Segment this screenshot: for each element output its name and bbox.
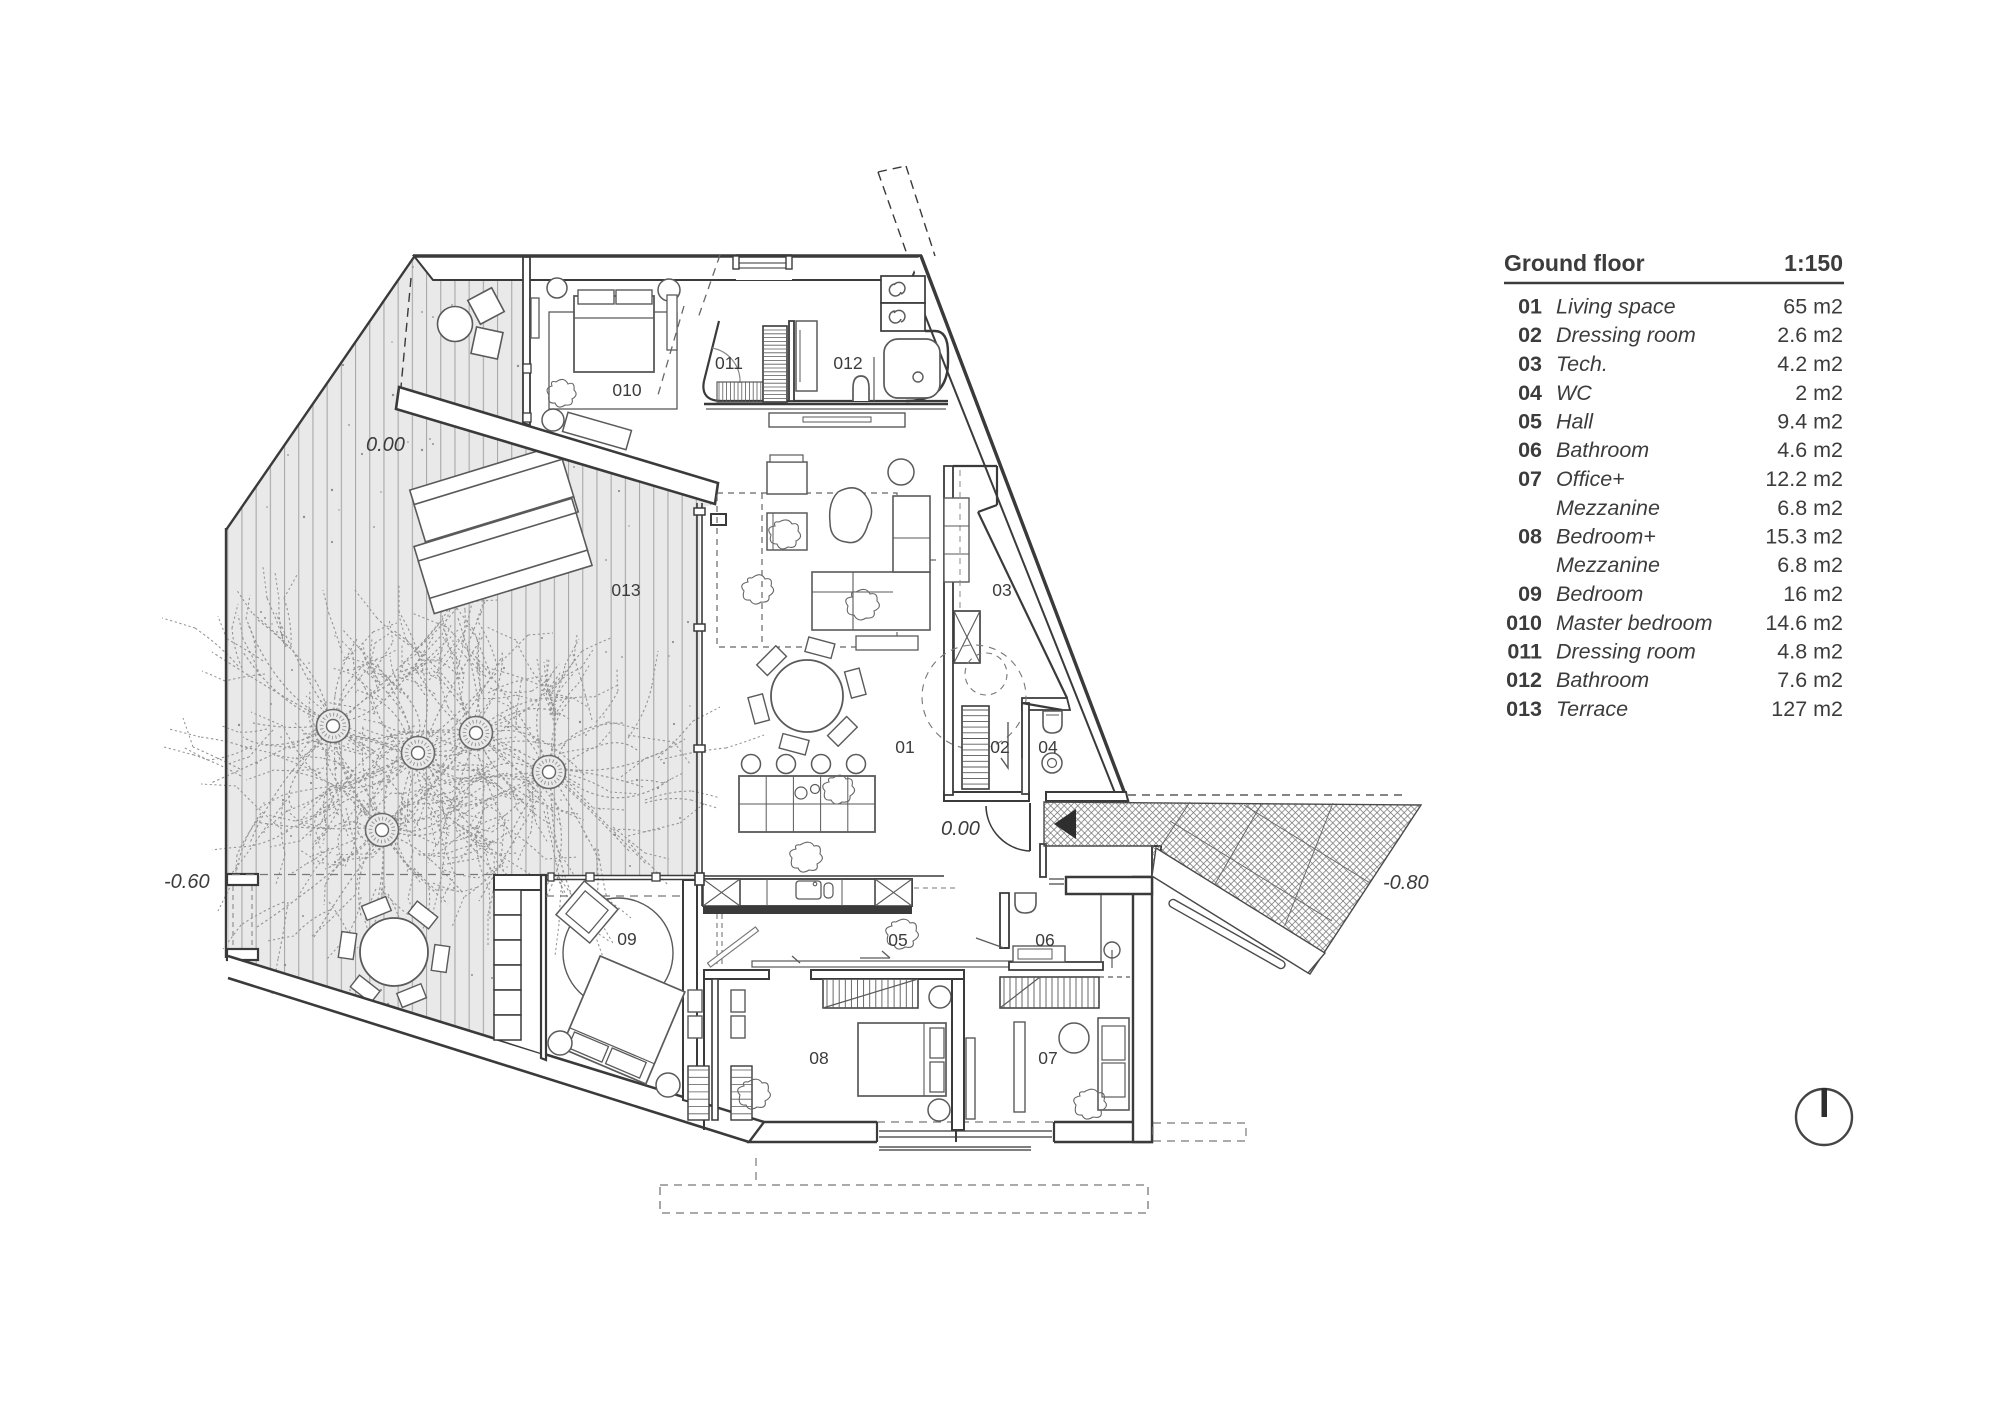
svg-text:02: 02 xyxy=(990,737,1009,757)
svg-text:4.8 m2: 4.8 m2 xyxy=(1777,640,1843,664)
svg-text:Office+: Office+ xyxy=(1556,467,1625,491)
svg-text:12.2 m2: 12.2 m2 xyxy=(1765,467,1843,491)
svg-text:Bedroom: Bedroom xyxy=(1556,582,1643,606)
svg-text:Bathroom: Bathroom xyxy=(1556,438,1649,462)
svg-text:0.00: 0.00 xyxy=(941,818,980,840)
svg-text:Tech.: Tech. xyxy=(1556,352,1608,376)
svg-text:9.4 m2: 9.4 m2 xyxy=(1777,410,1843,434)
svg-text:010: 010 xyxy=(1506,611,1542,635)
svg-text:013: 013 xyxy=(611,580,640,600)
svg-text:011: 011 xyxy=(1507,640,1542,664)
svg-text:Mezzanine: Mezzanine xyxy=(1556,553,1660,577)
svg-text:04: 04 xyxy=(1038,737,1058,757)
svg-text:14.6 m2: 14.6 m2 xyxy=(1765,611,1843,635)
svg-text:07: 07 xyxy=(1518,467,1542,491)
svg-text:01: 01 xyxy=(1518,295,1542,319)
svg-text:03: 03 xyxy=(992,580,1011,600)
svg-text:0.00: 0.00 xyxy=(366,434,405,456)
svg-text:Dressing room: Dressing room xyxy=(1556,323,1696,347)
svg-text:02: 02 xyxy=(1518,323,1542,347)
svg-text:Bathroom: Bathroom xyxy=(1556,668,1649,692)
svg-text:Mezzanine: Mezzanine xyxy=(1556,496,1660,520)
svg-text:7.6 m2: 7.6 m2 xyxy=(1777,668,1843,692)
svg-text:Hall: Hall xyxy=(1556,410,1594,434)
svg-text:127 m2: 127 m2 xyxy=(1771,697,1843,721)
svg-text:06: 06 xyxy=(1518,438,1542,462)
svg-text:16 m2: 16 m2 xyxy=(1783,582,1843,606)
svg-text:6.8 m2: 6.8 m2 xyxy=(1777,553,1843,577)
svg-text:Living space: Living space xyxy=(1556,295,1676,319)
svg-text:09: 09 xyxy=(1518,582,1542,606)
svg-text:Dressing room: Dressing room xyxy=(1556,640,1696,664)
svg-text:04: 04 xyxy=(1518,381,1542,405)
svg-text:08: 08 xyxy=(1518,525,1542,549)
svg-text:2.6 m2: 2.6 m2 xyxy=(1777,323,1843,347)
svg-text:06: 06 xyxy=(1035,930,1054,950)
svg-text:65 m2: 65 m2 xyxy=(1783,295,1843,319)
svg-text:-0.60: -0.60 xyxy=(164,871,210,893)
svg-text:012: 012 xyxy=(1506,668,1542,692)
svg-text:05: 05 xyxy=(888,930,907,950)
svg-text:1:150: 1:150 xyxy=(1784,250,1843,276)
svg-text:011: 011 xyxy=(715,353,743,373)
svg-text:Master bedroom: Master bedroom xyxy=(1556,611,1713,635)
svg-text:15.3 m2: 15.3 m2 xyxy=(1765,525,1843,549)
svg-text:4.2 m2: 4.2 m2 xyxy=(1777,352,1843,376)
svg-text:08: 08 xyxy=(809,1048,828,1068)
svg-text:010: 010 xyxy=(612,380,641,400)
svg-text:-0.80: -0.80 xyxy=(1383,872,1429,894)
svg-text:013: 013 xyxy=(1506,697,1542,721)
svg-text:07: 07 xyxy=(1038,1048,1057,1068)
svg-text:05: 05 xyxy=(1518,410,1542,434)
svg-text:Terrace: Terrace xyxy=(1556,697,1628,721)
svg-text:6.8 m2: 6.8 m2 xyxy=(1777,496,1843,520)
svg-text:4.6 m2: 4.6 m2 xyxy=(1777,438,1843,462)
svg-text:03: 03 xyxy=(1518,352,1542,376)
svg-text:WC: WC xyxy=(1556,381,1592,405)
svg-text:01: 01 xyxy=(895,737,914,757)
svg-text:Ground floor: Ground floor xyxy=(1504,250,1645,276)
svg-text:2 m2: 2 m2 xyxy=(1795,381,1843,405)
svg-text:Bedroom+: Bedroom+ xyxy=(1556,525,1656,549)
svg-text:09: 09 xyxy=(617,929,636,949)
svg-text:012: 012 xyxy=(833,353,862,373)
